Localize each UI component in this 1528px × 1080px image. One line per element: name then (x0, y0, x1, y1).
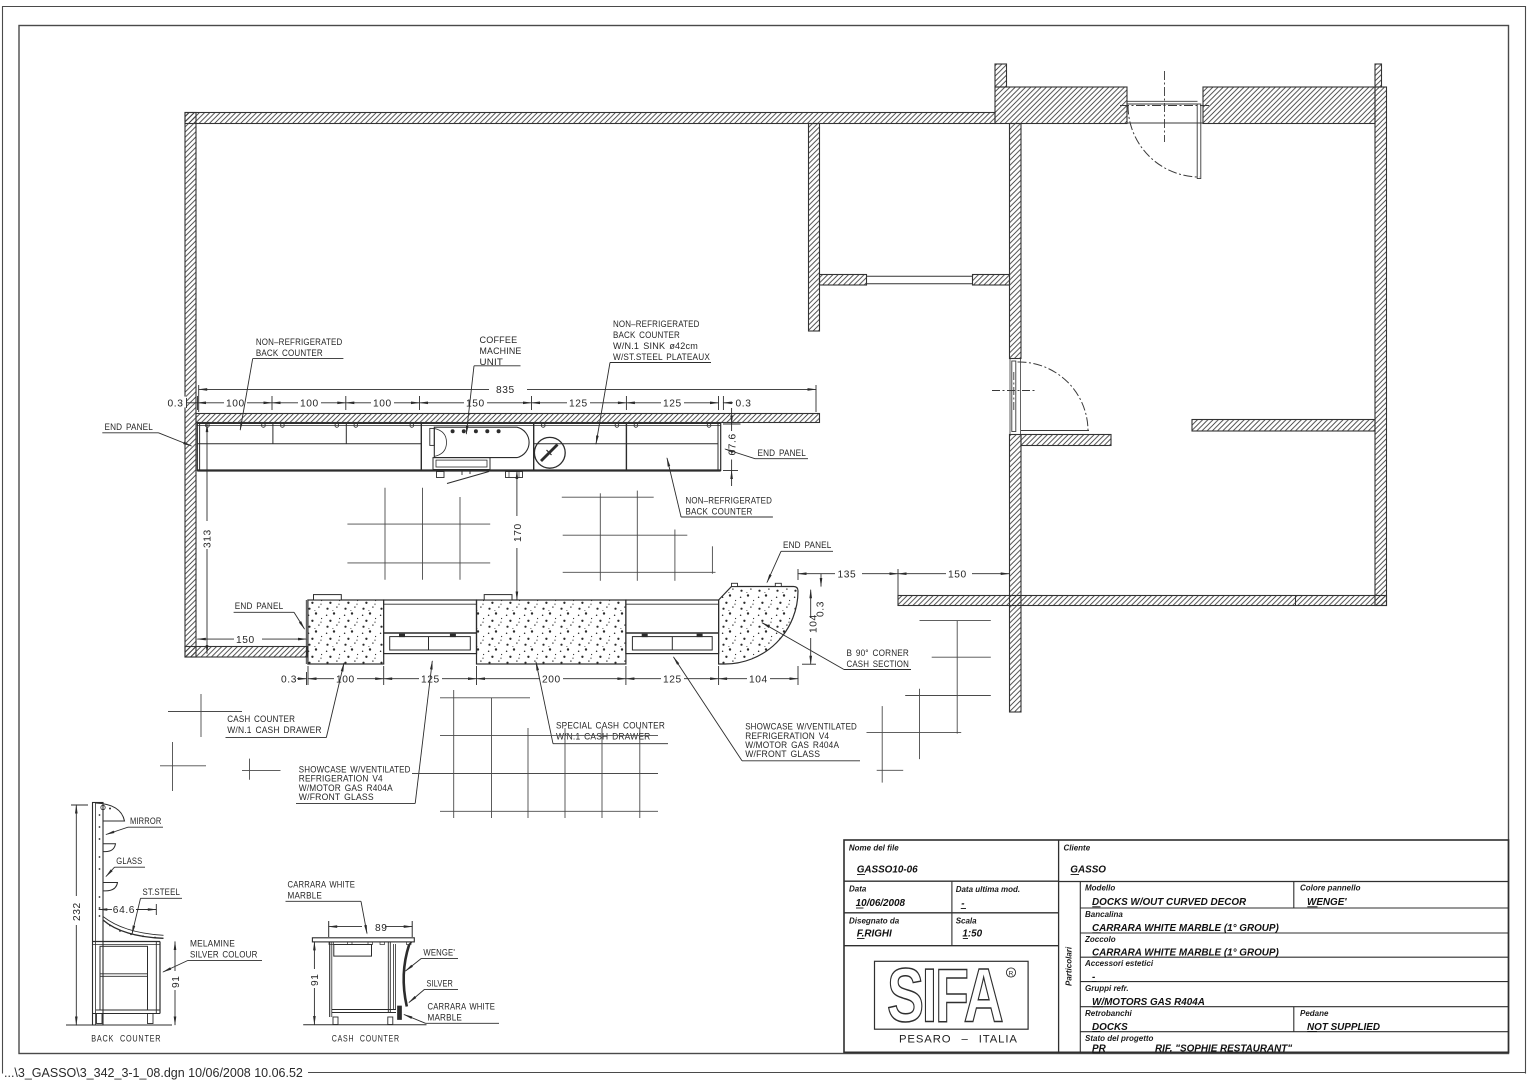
svg-text:MELAMINE: MELAMINE (190, 938, 235, 949)
svg-text:BACK COUNTER: BACK COUNTER (686, 506, 753, 517)
svg-text:BACK COUNTER: BACK COUNTER (91, 1034, 161, 1045)
svg-text:CARRARA WHITE MARBLE (1° GROUP: CARRARA WHITE MARBLE (1° GROUP) (1092, 923, 1279, 934)
svg-text:10/06/2008: 10/06/2008 (856, 898, 906, 909)
svg-text:Accessori estetici: Accessori estetici (1084, 959, 1154, 968)
svg-text:DOCKS W/OUT CURVED DECOR: DOCKS W/OUT CURVED DECOR (1092, 897, 1247, 908)
svg-text:Data: Data (849, 885, 867, 894)
svg-text:WENGE': WENGE' (423, 947, 455, 958)
svg-text:Retrobanchi: Retrobanchi (1085, 1009, 1132, 1018)
svg-text:Zoccolo: Zoccolo (1084, 935, 1116, 944)
svg-text:GLASS: GLASS (116, 856, 142, 867)
svg-text:CASH SECTION: CASH SECTION (847, 659, 910, 670)
svg-text:170: 170 (513, 523, 524, 542)
svg-text:125: 125 (569, 398, 588, 409)
svg-text:1:50: 1:50 (962, 929, 982, 940)
svg-text:Modello: Modello (1085, 884, 1115, 893)
svg-text:R: R (1009, 971, 1014, 978)
svg-text:100: 100 (226, 398, 245, 409)
svg-text:Nome del file: Nome del file (849, 844, 899, 853)
svg-text:CARRARA WHITE MARBLE (1° GROUP: CARRARA WHITE MARBLE (1° GROUP) (1092, 948, 1279, 959)
svg-text:100: 100 (300, 398, 319, 409)
svg-text:MACHINE: MACHINE (480, 346, 522, 357)
svg-text:150: 150 (236, 635, 255, 646)
svg-text:SILVER: SILVER (427, 978, 454, 989)
svg-text:ST.STEEL: ST.STEEL (143, 887, 181, 898)
svg-text:150: 150 (948, 570, 967, 581)
svg-text:CARRARA WHITE: CARRARA WHITE (428, 1002, 496, 1013)
svg-text:150: 150 (466, 398, 485, 409)
svg-text:-: - (961, 899, 964, 910)
svg-text:BACK COUNTER: BACK COUNTER (256, 348, 323, 359)
svg-text:91: 91 (310, 973, 321, 986)
svg-text:CARRARA WHITE: CARRARA WHITE (288, 880, 356, 891)
svg-text:104: 104 (749, 675, 768, 686)
svg-text:...\3_GASSO\3_342_3-1_08.dgn: ...\3_GASSO\3_342_3-1_08.dgn 10/06/2008 … (4, 1066, 303, 1080)
svg-text:W/FRONT GLASS: W/FRONT GLASS (299, 792, 374, 803)
svg-text:0.3: 0.3 (736, 398, 752, 409)
svg-text:SILVER COLOUR: SILVER COLOUR (190, 949, 258, 960)
svg-text:END PANEL: END PANEL (758, 448, 807, 459)
svg-text:END PANEL: END PANEL (105, 422, 154, 433)
svg-text:CASH COUNTER: CASH COUNTER (332, 1034, 400, 1045)
svg-text:Particolari: Particolari (1065, 946, 1074, 986)
svg-text:313: 313 (203, 529, 214, 548)
svg-text:NON–REFRIGERATED: NON–REFRIGERATED (686, 495, 773, 506)
svg-text:W/N.1 CASH DRAWER: W/N.1 CASH DRAWER (227, 725, 321, 736)
svg-text:135: 135 (838, 570, 857, 581)
svg-text:Scala: Scala (956, 917, 977, 926)
svg-text:PESARO – ITALIA: PESARO – ITALIA (899, 1034, 1018, 1046)
svg-text:COFFEE: COFFEE (480, 335, 518, 346)
svg-text:END PANEL: END PANEL (235, 601, 284, 612)
svg-text:W/FRONT GLASS: W/FRONT GLASS (745, 749, 820, 760)
svg-text:W/N.1 SINK ø42cm: W/N.1 SINK ø42cm (613, 341, 698, 352)
svg-text:232: 232 (72, 902, 83, 921)
svg-text:835: 835 (496, 385, 515, 396)
svg-text:Bancalina: Bancalina (1085, 910, 1123, 919)
svg-text:CASH COUNTER: CASH COUNTER (227, 714, 295, 725)
svg-text:100: 100 (373, 398, 392, 409)
svg-text:NON–REFRIGERATED: NON–REFRIGERATED (256, 337, 343, 348)
svg-text:BACK COUNTER: BACK COUNTER (613, 330, 680, 341)
svg-text:MARBLE: MARBLE (428, 1013, 463, 1024)
svg-text:MARBLE: MARBLE (288, 891, 323, 902)
svg-text:0.3: 0.3 (815, 601, 826, 617)
svg-text:200: 200 (542, 675, 561, 686)
svg-text:NOT SUPPLIED: NOT SUPPLIED (1307, 1022, 1380, 1033)
svg-text:GASSO: GASSO (1070, 865, 1106, 876)
svg-text:Cliente: Cliente (1064, 844, 1091, 853)
svg-text:GASSO10-06: GASSO10-06 (857, 865, 918, 876)
svg-text:MIRROR: MIRROR (130, 816, 162, 827)
svg-text:Gruppi refr.: Gruppi refr. (1085, 984, 1129, 993)
svg-text:125: 125 (663, 675, 682, 686)
svg-text:W/MOTORS GAS R404A: W/MOTORS GAS R404A (1092, 997, 1205, 1008)
svg-text:B 90° CORNER: B 90° CORNER (847, 648, 910, 659)
svg-text:RIF. "SOPHIE RESTAURANT": RIF. "SOPHIE RESTAURANT" (1155, 1043, 1292, 1054)
svg-text:Data ultima mod.: Data ultima mod. (956, 885, 1020, 894)
svg-text:Pedane: Pedane (1300, 1009, 1329, 1018)
svg-text:0.3: 0.3 (168, 398, 184, 409)
svg-text:Disegnato da: Disegnato da (849, 917, 900, 926)
svg-text:0.3: 0.3 (281, 675, 297, 686)
svg-text:91: 91 (171, 975, 182, 988)
svg-text:Stato del progetto: Stato del progetto (1085, 1034, 1154, 1043)
svg-text:SIFA: SIFA (887, 954, 1003, 1039)
svg-text:Colore pannello: Colore pannello (1300, 884, 1361, 893)
svg-text:125: 125 (663, 398, 682, 409)
svg-text:W/ST.STEEL PLATEAUX: W/ST.STEEL PLATEAUX (613, 352, 710, 363)
svg-text:W/N.1 CASH DRAWER: W/N.1 CASH DRAWER (556, 732, 650, 743)
svg-text:F.RIGHI: F.RIGHI (857, 929, 892, 940)
svg-text:NON–REFRIGERATED: NON–REFRIGERATED (613, 319, 700, 330)
svg-text:89: 89 (375, 923, 388, 934)
svg-text:END PANEL: END PANEL (783, 540, 832, 551)
svg-text:67.6: 67.6 (728, 433, 739, 455)
svg-text:SPECIAL CASH COUNTER: SPECIAL CASH COUNTER (556, 721, 665, 732)
svg-text:64.6: 64.6 (113, 905, 135, 916)
